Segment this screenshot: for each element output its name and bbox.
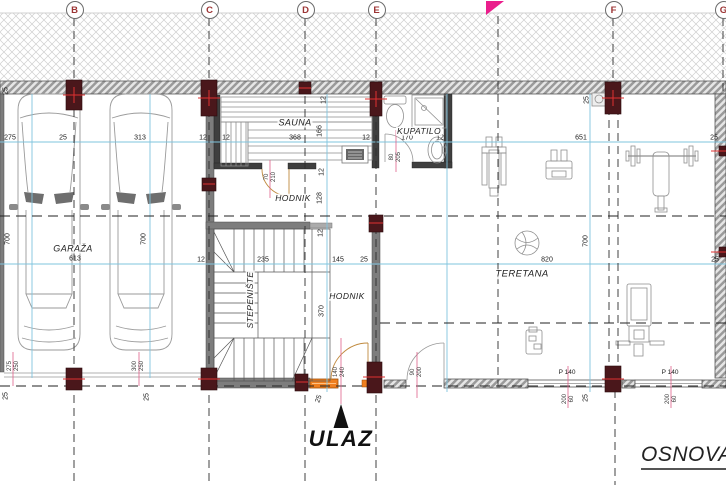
columns [66,80,726,393]
floor-plan-drawing [0,0,726,485]
entrance-label: ULAZ [297,426,385,452]
gym-exterior-door [407,343,444,380]
bathroom-fixtures [384,93,606,163]
entrance-door [331,343,368,380]
upper-floor-hatch [0,13,726,81]
squat-machine-icon [616,284,664,356]
bathroom-door [385,134,413,162]
floor-plan-canvas: 2752531312123681217012651251223514525820… [0,0,726,485]
sauna-heater-icon [342,146,368,163]
boiler-icon [592,93,606,106]
exterior-wall-right [715,94,726,378]
toilet-icon [384,96,406,128]
door-arcs [262,134,444,380]
dimension-ticks [0,93,726,384]
small-rack-icon [526,327,542,354]
sauna-door [262,169,289,196]
column-markers [63,87,726,382]
dimension-lines [0,94,726,392]
entrance-arrow-icon [334,404,349,428]
weight-machine-icon [546,150,572,179]
cardio-machine-icon [482,137,506,196]
car-icon [101,94,181,350]
exercise-ball-icon [515,231,539,255]
stairs [214,229,330,381]
plan-title: OSNOVA [641,443,726,470]
car-icon [9,94,89,350]
cars [9,94,181,350]
shower-icon [412,95,446,128]
bench-press-icon [626,146,698,212]
entrance-sill [310,379,368,388]
